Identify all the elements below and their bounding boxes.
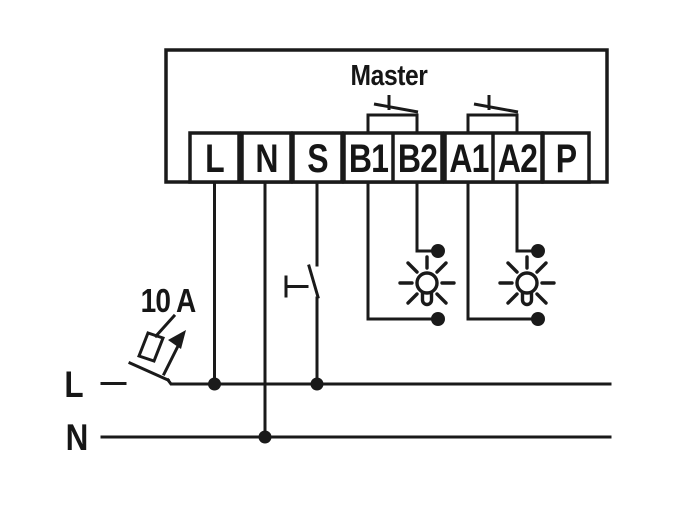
terminal-label-p: P <box>556 136 577 181</box>
lamp-ray <box>437 263 446 272</box>
terminal-label-l: L <box>205 136 224 181</box>
terminal-label-b2: B2 <box>398 136 437 181</box>
wire-terminal-b2 <box>417 182 434 251</box>
connection-dots <box>208 244 545 444</box>
lamp-icon-b <box>400 257 454 305</box>
phase-label: L <box>64 365 83 406</box>
terminal-label-b1: B1 <box>349 136 389 181</box>
master-label: Master <box>351 59 429 91</box>
terminal-label-a2: A2 <box>498 136 537 181</box>
lamp-ray <box>508 263 517 272</box>
push-button-icon <box>286 266 318 297</box>
lamp-ray <box>408 263 417 272</box>
lamp-bulb <box>417 273 437 293</box>
terminal-label-a1: A1 <box>449 136 489 181</box>
neutral-label: N <box>66 418 89 459</box>
junction-dot <box>311 378 324 391</box>
lamp-terminal-dot <box>531 244 545 258</box>
breaker-latch <box>139 333 163 361</box>
phase-line <box>168 380 610 384</box>
lamp-ray <box>537 263 546 272</box>
breaker-arrow-shaft <box>164 344 179 374</box>
lamp-ray <box>408 294 417 303</box>
terminal-label-s: S <box>307 136 328 181</box>
lamp-ray <box>508 294 517 303</box>
lamp-bulb <box>517 273 537 293</box>
terminal-label-n: N <box>255 136 277 181</box>
wire-terminal-a2 <box>517 182 534 251</box>
lamp-terminal-dot <box>531 312 545 326</box>
lamp-icon-a <box>500 257 554 305</box>
junction-dot <box>208 378 221 391</box>
breaker-rating-label: 10 A <box>141 283 197 320</box>
lamp-ray <box>437 294 446 303</box>
breaker-blade <box>130 363 168 380</box>
circuit-breaker-icon <box>130 316 186 380</box>
lamp-base <box>423 293 432 305</box>
lamp-terminal-dot <box>431 312 445 326</box>
lamp-terminal-dot <box>431 244 445 258</box>
wiring-diagram: Master L N S B1 B2 A1 A2 P <box>0 0 676 506</box>
push-button-blade <box>309 266 318 297</box>
lamp-ray <box>537 294 546 303</box>
lamp-base <box>523 293 532 305</box>
breaker-arrow-head <box>168 330 186 349</box>
junction-dot <box>259 431 272 444</box>
